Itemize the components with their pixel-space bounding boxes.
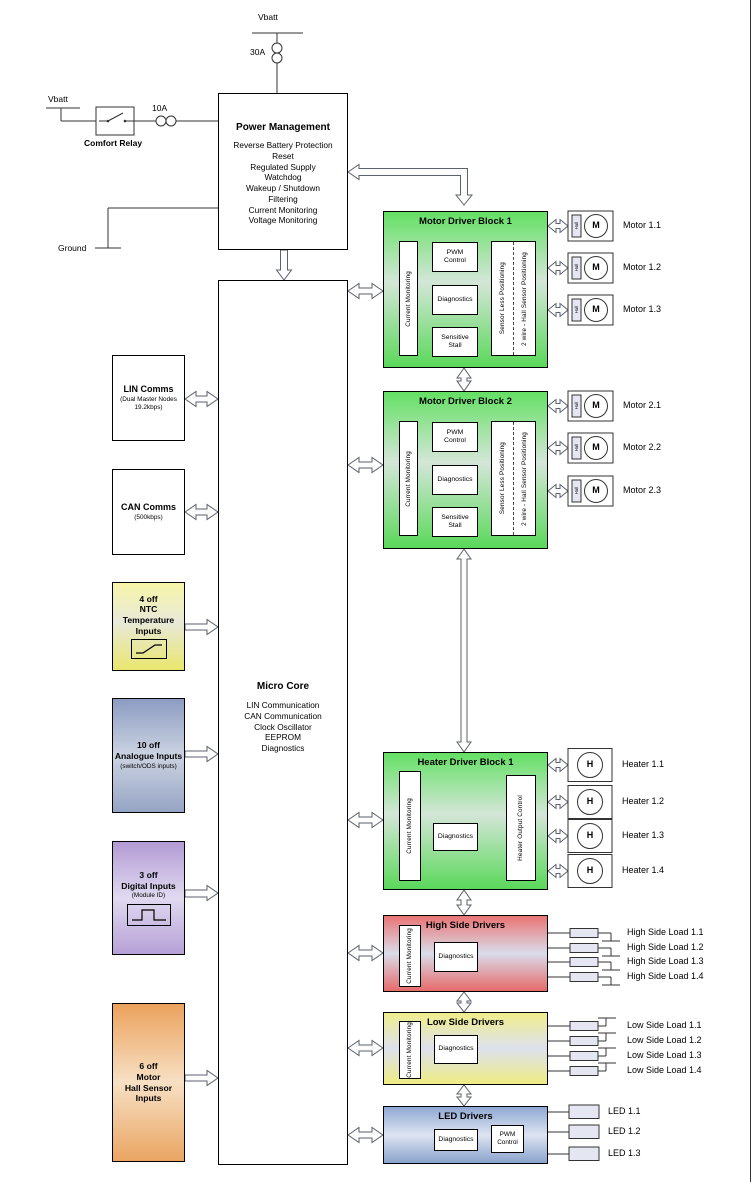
low-side-load-symbol	[548, 1033, 616, 1046]
digital-inputs-block: 3 off Digital Inputs (Module ID)	[112, 841, 185, 955]
heater-label: Heater 1.1	[622, 759, 732, 769]
low-side-load-symbol	[548, 1018, 616, 1031]
heater-symbol: H	[583, 865, 597, 875]
arrow-motor-1-1	[548, 220, 568, 233]
arrow-heater-1-4	[548, 865, 568, 878]
low-side-load-symbol	[548, 1048, 616, 1061]
pwm-control-box: PWM Control	[432, 242, 478, 272]
led-drivers-title: LED Drivers	[384, 1111, 547, 1122]
motor-driver-block-1: Motor Driver Block 1 Current Monitoring …	[383, 211, 548, 368]
low-side-load-symbols	[548, 1018, 616, 1076]
current-monitoring-label: Current Monitoring	[405, 451, 413, 507]
high-side-load-label: High Side Load 1.4	[627, 971, 737, 981]
low-side-drivers-block: Low Side Drivers Current Monitoring Diag…	[383, 1012, 548, 1085]
arrow-micro-highside	[348, 946, 383, 961]
low-side-load-symbol	[548, 1063, 616, 1076]
arrow-can-micro	[185, 505, 218, 520]
lin-comms-title: LIN Comms	[123, 384, 173, 395]
analogue-inputs-sub: (switch/ODS inputs)	[120, 763, 176, 771]
arrow-micro-led	[348, 1128, 383, 1143]
current-monitoring-box: Current Monitoring	[399, 771, 421, 881]
high-side-load-symbols	[548, 929, 620, 986]
sensor-less-half: Sensor Less Positioning	[492, 242, 514, 355]
heater-symbol: H	[583, 830, 597, 840]
motor-label: Motor 1.2	[623, 262, 733, 272]
motor-label: Motor 2.2	[623, 442, 733, 452]
led-symbol	[548, 1125, 599, 1139]
arrow-micro-mdb1	[348, 284, 383, 299]
motor-symbol: M	[589, 304, 603, 314]
pulse-icon	[127, 904, 171, 926]
vbatt-left-feed	[46, 107, 218, 135]
ntc-curve-icon	[131, 639, 167, 659]
digital-inputs-title: 3 off Digital Inputs	[121, 870, 175, 891]
lin-comms-block: LIN Comms (Dual Master Nodes 19.2kbps)	[112, 355, 185, 441]
micro-core-features: LIN Communication CAN Communication Cloc…	[219, 700, 347, 754]
low-side-load-label: Low Side Load 1.4	[627, 1065, 737, 1075]
diagnostics-box: Diagnostics	[434, 1129, 478, 1151]
relay-contact	[107, 120, 110, 123]
led-drivers-block: LED Drivers Diagnostics PWM Control	[383, 1106, 548, 1164]
arrow-pm-mdb1	[348, 165, 472, 206]
motor-symbol: M	[589, 220, 603, 230]
fuse-30a-icon	[272, 53, 282, 63]
motor-symbol: M	[589, 485, 603, 495]
motor-label: Motor 1.3	[623, 304, 733, 314]
led-label: LED 1.1	[608, 1106, 718, 1116]
power-management-block: Power Management Reverse Battery Protect…	[218, 93, 348, 250]
ground-label: Ground	[58, 243, 86, 253]
led-label: LED 1.2	[608, 1126, 718, 1136]
led-symbol	[548, 1147, 599, 1161]
arrow-motor-2-1	[548, 400, 568, 413]
led-symbols	[548, 1105, 599, 1161]
heater-output-control-box: Heater Output Control	[506, 775, 536, 881]
arrow-heater-highside	[457, 890, 471, 915]
low-side-load-label: Low Side Load 1.2	[627, 1035, 737, 1045]
ntc-inputs-title: 4 off NTC Temperature Inputs	[123, 594, 174, 637]
arrow-motor-1-2	[548, 262, 568, 275]
arrow-micro-lowside	[348, 1041, 383, 1056]
arrow-motor-1-3	[548, 304, 568, 317]
can-comms-block: CAN Comms (500kbps)	[112, 469, 185, 555]
current-monitoring-label: Current Monitoring	[406, 798, 414, 854]
vbatt-top-label: Vbatt	[258, 12, 278, 22]
hall-tag: Hall	[572, 437, 582, 459]
hall-tag: Hall	[572, 395, 582, 417]
high-side-load-symbol	[548, 929, 620, 942]
motor-driver-block-2: Motor Driver Block 2 Current Monitoring …	[383, 391, 548, 549]
heater-label: Heater 1.4	[622, 865, 732, 875]
hall-tag: Hall	[572, 299, 582, 321]
fuse-30a-label: 30A	[250, 47, 265, 57]
current-monitoring-box: Current Monitoring	[399, 1021, 421, 1079]
arrow-analogue-micro	[185, 747, 218, 762]
high-side-load-label: High Side Load 1.1	[627, 927, 737, 937]
block-diagram: Vbatt 30A Vbatt 10A Comfort Relay Ground…	[0, 0, 756, 1182]
motor-symbol: M	[589, 400, 603, 410]
comfort-relay-label: Comfort Relay	[84, 138, 142, 148]
arrow-lin-micro	[185, 392, 218, 407]
led-label: LED 1.3	[608, 1148, 718, 1158]
diagnostics-box: Diagnostics	[433, 823, 478, 851]
arrow-ntc-micro	[185, 620, 218, 635]
heater-symbol: H	[583, 796, 597, 806]
high-side-load-symbol	[548, 958, 620, 971]
heater-driver-block-1-title: Heater Driver Block 1	[384, 757, 547, 768]
positioning-box: Sensor Less Positioning 2 wire - Hall Se…	[491, 241, 536, 356]
current-monitoring-label: Current Monitoring	[405, 271, 413, 327]
micro-core-title: Micro Core	[219, 681, 347, 692]
low-side-load-label: Low Side Load 1.3	[627, 1050, 737, 1060]
hall-tag: Hall	[572, 257, 582, 279]
hall-sensor-inputs-title: 6 off Motor Hall Sensor Inputs	[125, 1061, 172, 1104]
pwm-control-box: PWM Control	[491, 1125, 524, 1153]
diagnostics-box: Diagnostics	[432, 285, 478, 315]
low-side-load-label: Low Side Load 1.1	[627, 1020, 737, 1030]
power-management-features: Reverse Battery Protection Reset Regulat…	[219, 140, 347, 226]
motor-units	[568, 211, 613, 506]
hall-positioning-half: 2 wire - Hall Sensor Positioning	[514, 242, 535, 355]
diagnostics-box: Diagnostics	[434, 1035, 478, 1064]
can-comms-sub: (500kbps)	[134, 514, 162, 522]
ntc-inputs-block: 4 off NTC Temperature Inputs	[112, 582, 185, 671]
fuse-10a-label: 10A	[152, 103, 167, 113]
can-comms-title: CAN Comms	[121, 502, 176, 513]
arrow-motor-2-2	[548, 442, 568, 455]
heater-driver-block-1: Heater Driver Block 1 Current Monitoring…	[383, 752, 548, 890]
arrow-micro-heater	[348, 813, 383, 828]
heater-label: Heater 1.3	[622, 830, 732, 840]
arrow-mdb2-heater	[457, 549, 471, 752]
motor-label: Motor 1.1	[623, 220, 733, 230]
current-monitoring-box: Current Monitoring	[399, 421, 418, 536]
motor-driver-block-2-title: Motor Driver Block 2	[384, 396, 547, 407]
hall-tag: Hall	[572, 215, 582, 237]
motor-driver-block-1-title: Motor Driver Block 1	[384, 216, 547, 227]
current-monitoring-label: Current Monitoring	[406, 1022, 414, 1078]
current-monitoring-box: Current Monitoring	[399, 925, 421, 987]
high-side-load-label: High Side Load 1.3	[627, 956, 737, 966]
digital-inputs-sub: (Module ID)	[132, 892, 165, 900]
heater-label: Heater 1.2	[622, 796, 732, 806]
high-side-load-symbol	[548, 973, 620, 986]
motor-label: Motor 2.3	[623, 485, 733, 495]
high-side-drivers-block: High Side Drivers Current Monitoring Dia…	[383, 915, 548, 992]
arrow-mdb1-mdb2	[457, 368, 471, 391]
fuse-30a-icon	[272, 43, 282, 53]
high-side-load-symbol	[548, 944, 620, 957]
arrow-lowside-led	[457, 1085, 471, 1106]
pwm-control-box: PWM Control	[432, 422, 478, 452]
arrow-highside-lowside	[457, 992, 471, 1012]
sensor-less-half: Sensor Less Positioning	[492, 422, 514, 535]
fuse-10a-icon	[166, 116, 176, 126]
hall-sensor-inputs-block: 6 off Motor Hall Sensor Inputs	[112, 1003, 185, 1162]
sensitive-stall-box: Sensitive Stall	[432, 327, 478, 357]
sensor-less-label: Sensor Less Positioning	[499, 262, 507, 334]
hall-positioning-label: 2 wire - Hall Sensor Positioning	[521, 432, 529, 526]
arrow-pm-to-micro	[277, 250, 292, 280]
led-symbol	[548, 1105, 599, 1119]
power-management-title: Power Management	[219, 122, 347, 133]
hall-positioning-label: 2 wire - Hall Sensor Positioning	[521, 252, 529, 346]
diagnostics-box: Diagnostics	[434, 942, 478, 972]
sensor-less-label: Sensor Less Positioning	[499, 442, 507, 514]
arrow-motor-2-3	[548, 485, 568, 498]
vbatt-top-feed	[252, 33, 303, 93]
positioning-box: Sensor Less Positioning 2 wire - Hall Se…	[491, 421, 536, 536]
arrow-hall-micro	[185, 1071, 218, 1086]
lin-comms-sub: (Dual Master Nodes 19.2kbps)	[120, 396, 177, 412]
micro-core-block: Micro Core LIN Communication CAN Communi…	[218, 280, 348, 1165]
fuse-10a-icon	[156, 116, 166, 126]
vbatt-left-label: Vbatt	[48, 94, 68, 104]
arrow-heater-1-2	[548, 796, 568, 809]
diagnostics-box: Diagnostics	[432, 465, 478, 495]
current-monitoring-label: Current Monitoring	[406, 928, 414, 984]
analogue-inputs-title: 10 off Analogue Inputs	[115, 740, 182, 761]
motor-symbol: M	[589, 262, 603, 272]
motor-symbol: M	[589, 442, 603, 452]
high-side-load-label: High Side Load 1.2	[627, 942, 737, 952]
heater-symbol: H	[583, 759, 597, 769]
arrow-heater-1-3	[548, 830, 568, 843]
sensitive-stall-box: Sensitive Stall	[432, 507, 478, 537]
arrow-heater-1-1	[548, 759, 568, 772]
heater-output-control-label: Heater Output Control	[517, 795, 525, 861]
hall-tag: Hall	[572, 480, 582, 502]
hall-positioning-half: 2 wire - Hall Sensor Positioning	[514, 422, 535, 535]
arrow-micro-mdb2	[348, 458, 383, 473]
current-monitoring-box: Current Monitoring	[399, 241, 418, 356]
analogue-inputs-block: 10 off Analogue Inputs (switch/ODS input…	[112, 698, 185, 813]
motor-label: Motor 2.1	[623, 400, 733, 410]
arrow-digital-micro	[185, 886, 218, 901]
ground-wire	[95, 208, 218, 248]
